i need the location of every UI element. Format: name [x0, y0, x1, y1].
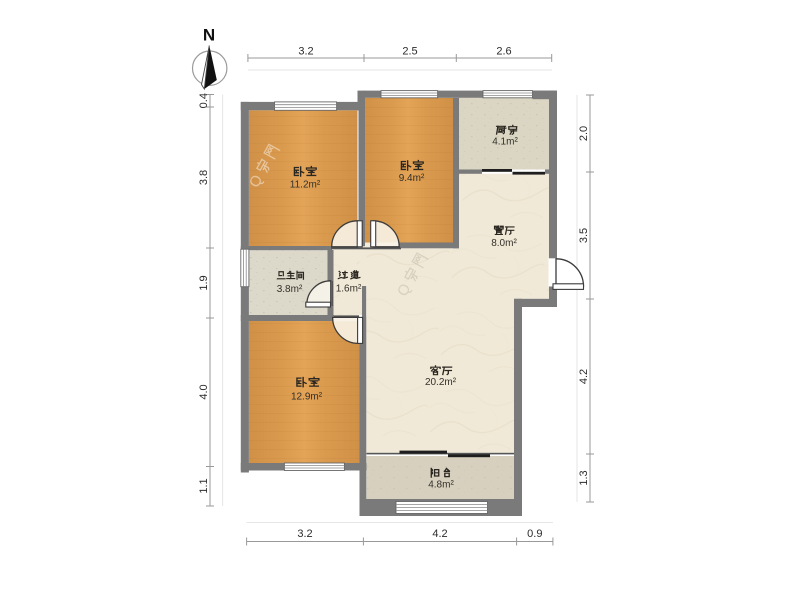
svg-text:3.5: 3.5: [578, 228, 590, 243]
svg-text:3.8m²: 3.8m²: [277, 284, 303, 295]
svg-text:20.2m²: 20.2m²: [425, 377, 457, 388]
svg-text:1.3: 1.3: [578, 470, 590, 485]
svg-text:8.0m²: 8.0m²: [491, 238, 517, 249]
svg-text:4.8m²: 4.8m²: [428, 480, 454, 491]
svg-text:2.0: 2.0: [578, 126, 590, 141]
svg-text:3.8: 3.8: [198, 170, 210, 185]
svg-text:0.4: 0.4: [198, 93, 210, 108]
svg-text:2.6: 2.6: [496, 46, 511, 58]
svg-text:N: N: [203, 26, 215, 45]
svg-text:1.6m²: 1.6m²: [336, 284, 362, 295]
svg-text:3.2: 3.2: [297, 528, 312, 540]
svg-text:4.1m²: 4.1m²: [492, 137, 518, 148]
svg-text:4.0: 4.0: [198, 384, 210, 399]
svg-text:11.2m²: 11.2m²: [290, 180, 321, 191]
svg-text:1.9: 1.9: [198, 275, 210, 290]
svg-text:3.2: 3.2: [298, 46, 313, 58]
svg-text:4.2: 4.2: [432, 528, 447, 540]
svg-text:1.1: 1.1: [198, 478, 210, 493]
svg-text:12.9m²: 12.9m²: [291, 392, 323, 403]
svg-text:9.4m²: 9.4m²: [399, 173, 425, 184]
svg-text:4.2: 4.2: [578, 369, 590, 384]
svg-text:2.5: 2.5: [402, 46, 417, 58]
svg-text:0.9: 0.9: [527, 528, 542, 540]
